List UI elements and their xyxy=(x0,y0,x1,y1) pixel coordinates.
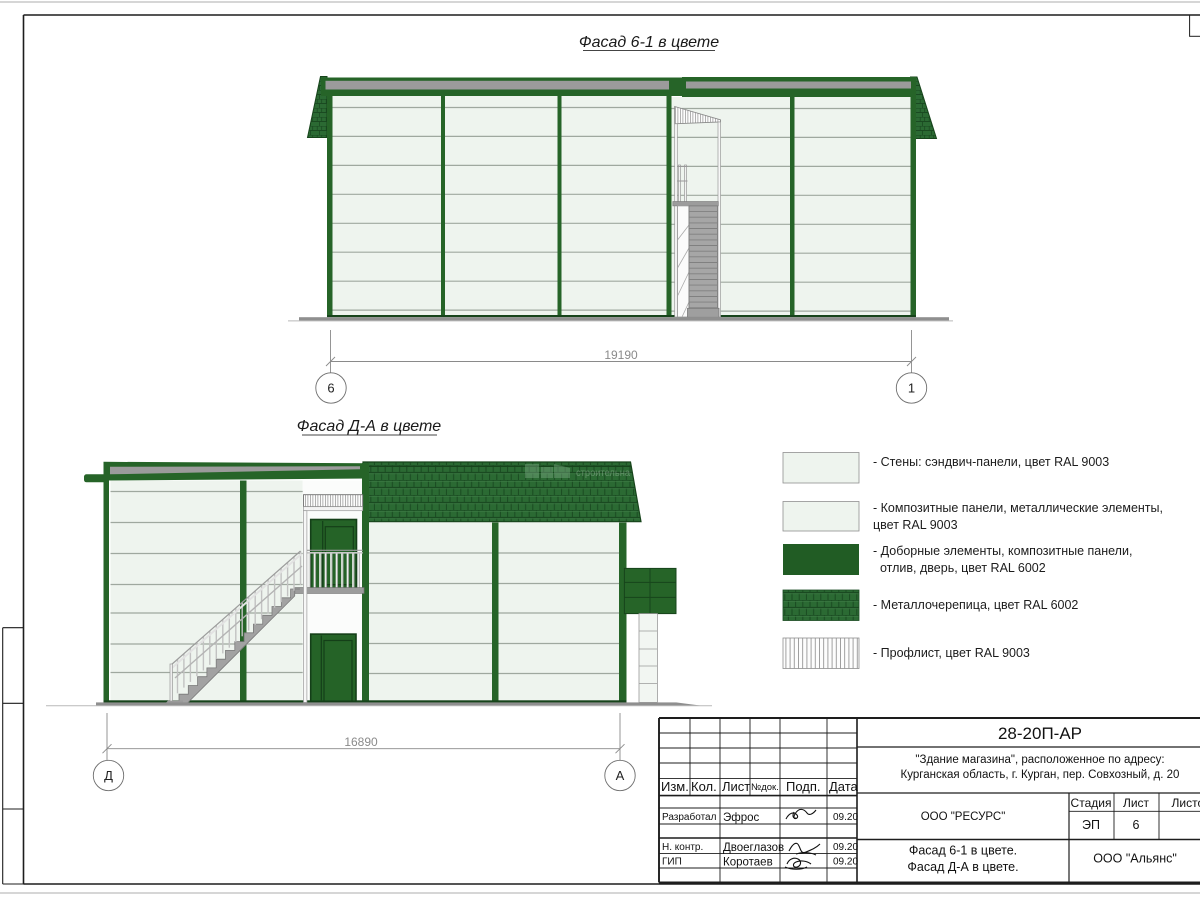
svg-text:отлив, дверь, цвет RAL 6002: отлив, дверь, цвет RAL 6002 xyxy=(880,561,1046,575)
svg-text:Фасад 6-1 в цвете.: Фасад 6-1 в цвете. xyxy=(909,844,1017,858)
svg-text:ЭП: ЭП xyxy=(1082,818,1100,832)
svg-text:Подп.: Подп. xyxy=(786,779,821,794)
svg-text:Двоеглазов: Двоеглазов xyxy=(723,842,784,854)
svg-text:6: 6 xyxy=(327,381,334,396)
svg-text:Кол.: Кол. xyxy=(691,779,717,794)
svg-text:6: 6 xyxy=(1133,818,1140,832)
svg-text:- Профлист, цвет RAL 9003: - Профлист, цвет RAL 9003 xyxy=(873,646,1030,660)
svg-text:ГИП: ГИП xyxy=(662,857,682,868)
svg-text:ООО "Альянс": ООО "Альянс" xyxy=(1093,852,1177,866)
svg-text:Стадия: Стадия xyxy=(1071,796,1112,810)
svg-text:Курганская область, г. Курган,: Курганская область, г. Курган, пер. Совх… xyxy=(901,769,1180,781)
svg-text:Лист: Лист xyxy=(1123,796,1150,810)
svg-text:1: 1 xyxy=(908,381,915,396)
svg-text:- Металлочерепица, цвет RAL 60: - Металлочерепица, цвет RAL 6002 xyxy=(873,598,1078,612)
svg-text:ООО "РЕСУРС": ООО "РЕСУРС" xyxy=(921,811,1006,823)
svg-text:- Доборные элементы, композит: - Доборные элементы, композитные панели, xyxy=(873,544,1132,558)
svg-text:А: А xyxy=(616,768,625,783)
svg-text:"Здание магазина", расположенн: "Здание магазина", расположенное по адре… xyxy=(915,754,1164,766)
svg-text:Фасад Д-А в цвете.: Фасад Д-А в цвете. xyxy=(907,860,1018,874)
svg-text:строительна: строительна xyxy=(576,468,630,479)
svg-text:Фасад 6-1 в цвете: Фасад 6-1 в цвете xyxy=(579,34,719,51)
svg-text:28-20П-АР: 28-20П-АР xyxy=(998,724,1082,743)
svg-text:19190: 19190 xyxy=(604,348,638,362)
svg-text:№док.: №док. xyxy=(751,782,779,793)
svg-text:- Стены: сэндвич-панели, цвет: - Стены: сэндвич-панели, цвет RAL 9003 xyxy=(873,455,1109,469)
svg-text:Лист: Лист xyxy=(722,779,750,794)
svg-text:- Композитные панели, металлич: - Композитные панели, металлические элем… xyxy=(873,501,1163,515)
svg-text:Дата: Дата xyxy=(829,779,859,794)
svg-text:09.20: 09.20 xyxy=(833,842,858,853)
svg-text:Изм.: Изм. xyxy=(661,779,689,794)
svg-text:09.20: 09.20 xyxy=(833,812,858,823)
svg-text:Н. контр.: Н. контр. xyxy=(662,842,703,853)
svg-text:Листов: Листов xyxy=(1172,796,1200,810)
svg-text:Эфрос: Эфрос xyxy=(723,812,760,824)
svg-text:Фасад Д-А в цвете: Фасад Д-А в цвете xyxy=(297,418,442,435)
svg-text:Разработал: Разработал xyxy=(662,811,717,823)
svg-text:цвет RAL 9003: цвет RAL 9003 xyxy=(873,518,958,532)
svg-text:Коротаев: Коротаев xyxy=(723,857,773,869)
svg-text:Д: Д xyxy=(104,768,113,783)
svg-text:09.20: 09.20 xyxy=(833,857,858,868)
svg-text:16890: 16890 xyxy=(344,735,378,749)
